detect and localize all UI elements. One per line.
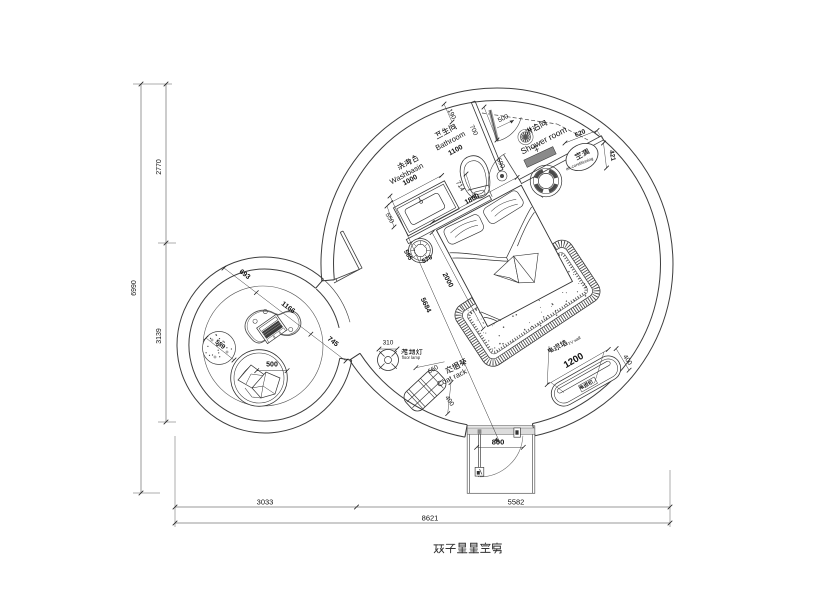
svg-text:3139: 3139	[156, 328, 163, 344]
svg-text:500: 500	[266, 362, 278, 369]
svg-text:310: 310	[383, 340, 394, 347]
svg-text:8621: 8621	[422, 514, 439, 523]
svg-text:5582: 5582	[508, 498, 525, 507]
svg-text:floor lamp: floor lamp	[402, 355, 421, 360]
svg-text:2770: 2770	[156, 159, 163, 175]
svg-text:3033: 3033	[257, 498, 274, 507]
svg-text:6990: 6990	[131, 280, 138, 296]
